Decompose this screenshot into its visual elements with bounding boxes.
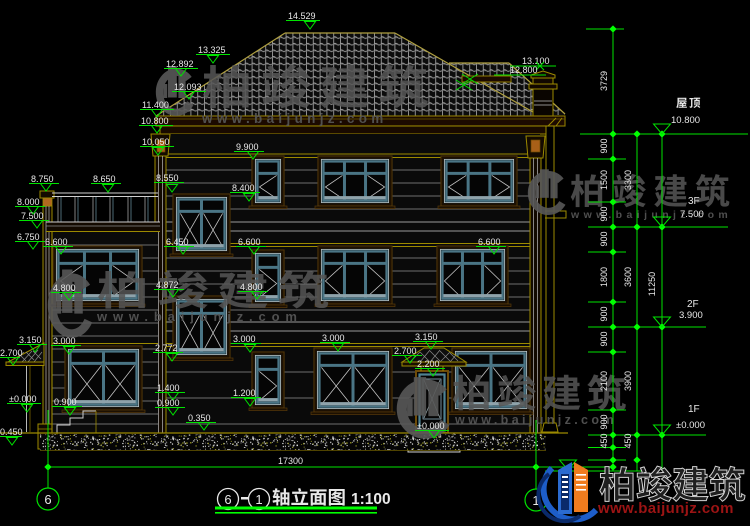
svg-text:2.772: 2.772 [155,343,178,353]
svg-text:11.400: 11.400 [142,100,169,110]
svg-text:7.500: 7.500 [680,209,704,220]
svg-text:3.150: 3.150 [415,332,438,342]
svg-text:www.baijunjz.com: www.baijunjz.com [96,309,303,324]
svg-text:1800: 1800 [599,267,609,287]
svg-text:17300: 17300 [278,456,303,466]
svg-text:2F: 2F [687,299,699,310]
svg-text:14.529: 14.529 [288,11,316,21]
svg-text:4.800: 4.800 [240,282,263,292]
svg-text:450: 450 [623,433,633,448]
svg-text:10.800: 10.800 [141,116,169,126]
svg-text:900: 900 [599,306,609,321]
svg-text:1F: 1F [688,404,700,415]
svg-text:900: 900 [599,331,609,346]
svg-text:2.200: 2.200 [417,359,440,369]
svg-text:3.000: 3.000 [322,333,345,343]
svg-text:7.500: 7.500 [21,211,44,221]
svg-text:900: 900 [599,231,609,246]
svg-text:13.325: 13.325 [198,45,226,55]
svg-text:12.093: 12.093 [174,82,202,92]
svg-text:±0.000: ±0.000 [676,420,705,431]
svg-text:www.baijunjz.com: www.baijunjz.com [201,111,388,126]
svg-text:8.650: 8.650 [93,174,116,184]
svg-text:3.900: 3.900 [679,310,703,321]
svg-text:3900: 3900 [623,371,633,391]
svg-text:1:100: 1:100 [351,491,391,508]
svg-text:6.600: 6.600 [45,237,68,247]
svg-text:0.350: 0.350 [188,413,211,423]
svg-text:0.450: 0.450 [0,427,23,437]
svg-text:3600: 3600 [623,267,633,287]
svg-text:±0.000: ±0.000 [417,421,444,431]
svg-text:10.800: 10.800 [671,115,700,126]
svg-text:9.900: 9.900 [236,142,259,152]
svg-text:900: 900 [599,138,609,153]
svg-text:4.872: 4.872 [156,280,179,290]
svg-text:1: 1 [255,492,262,507]
svg-text:8.400: 8.400 [232,183,255,193]
svg-text:3.150: 3.150 [19,335,42,345]
svg-text:450: 450 [599,433,609,448]
svg-text:6.450: 6.450 [166,237,189,247]
svg-text:6: 6 [44,492,51,507]
svg-text:12.800: 12.800 [510,65,538,75]
svg-text:1500: 1500 [599,170,609,190]
svg-text:900: 900 [599,206,609,221]
svg-text:3.000: 3.000 [53,336,76,346]
svg-text:8.550: 8.550 [156,173,179,183]
svg-text:0.900: 0.900 [157,398,180,408]
svg-text:10.050: 10.050 [142,137,170,147]
svg-text:6.750: 6.750 [17,232,40,242]
svg-text:0.900: 0.900 [54,397,77,407]
svg-text:6.600: 6.600 [238,237,261,247]
svg-text:±0.000: ±0.000 [9,394,36,404]
svg-text:2.700: 2.700 [394,346,417,356]
svg-text:1.200: 1.200 [233,388,256,398]
svg-text:6: 6 [224,492,231,507]
svg-text:8.750: 8.750 [31,174,54,184]
svg-text:www.baijunjz.com: www.baijunjz.com [570,209,732,221]
svg-text:www.baijunjz.com: www.baijunjz.com [454,413,617,427]
svg-text:6.600: 6.600 [478,237,501,247]
svg-text:3300: 3300 [623,170,633,190]
svg-text:4.800: 4.800 [53,283,76,293]
svg-text:3729: 3729 [599,71,609,91]
svg-text:www.baijunjz.com: www.baijunjz.com [597,500,734,517]
svg-text:1.400: 1.400 [157,383,180,393]
svg-text:3F: 3F [688,196,700,207]
svg-text:12.892: 12.892 [166,59,194,69]
svg-text:3.000: 3.000 [233,334,256,344]
svg-text:2100: 2100 [599,371,609,391]
svg-text:900: 900 [599,414,609,429]
svg-text:8.000: 8.000 [17,197,40,207]
svg-text:2.700: 2.700 [0,348,23,358]
svg-text:11250: 11250 [647,272,657,296]
